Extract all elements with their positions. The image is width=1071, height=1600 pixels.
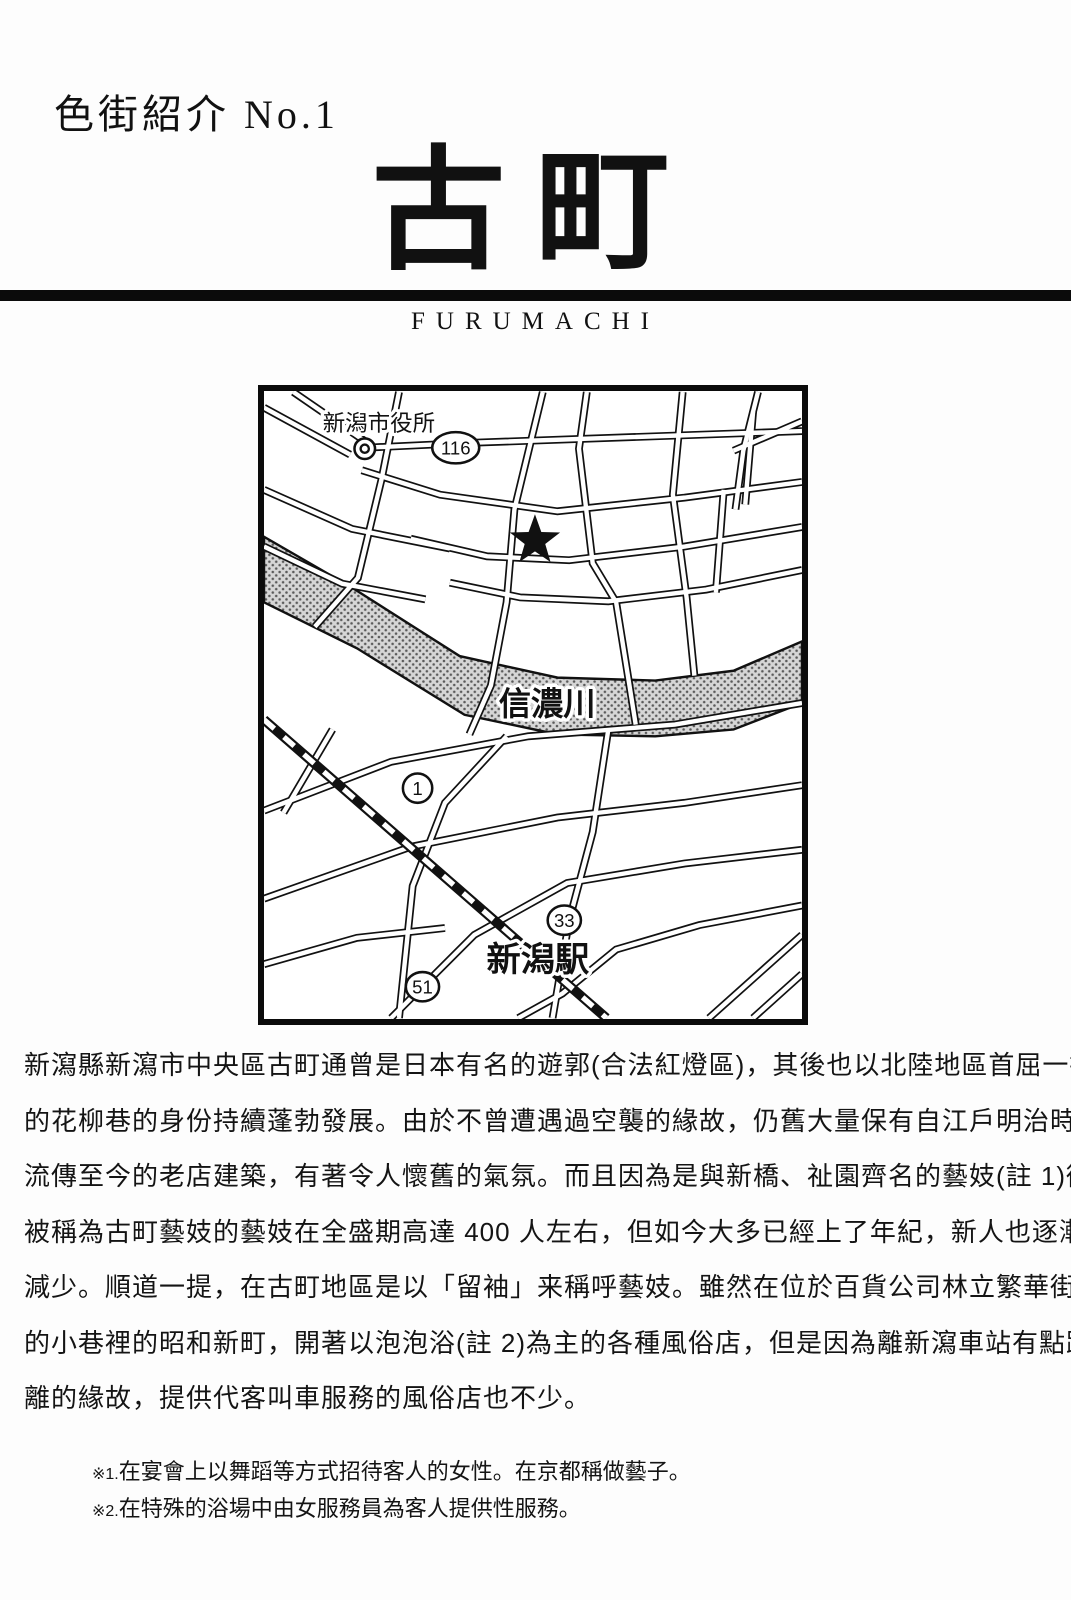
footnote-2-text: 在特殊的浴場中由女服務員為客人提供性服務。: [119, 1496, 581, 1521]
series-label: 色街紹介 No.1: [54, 82, 339, 140]
road-casing: [450, 570, 802, 601]
body-line: 的小巷裡的昭和新町，開著以泡泡浴(註 2)為主的各種風俗店，但是因為離新瀉車站有…: [24, 1316, 1054, 1372]
body-line: 的花柳巷的身份持續蓬勃發展。由於不曾遭遇過空襲的緣故，仍舊大量保有自江戶明治時代: [24, 1094, 1054, 1150]
body-paragraph: 新瀉縣新瀉市中央區古町通曾是日本有名的遊郭(合法紅燈區)，其後也以北陸地區首屈一…: [24, 1038, 1054, 1427]
page-title: 古町: [0, 142, 1071, 282]
city-hall-icon: [354, 438, 375, 459]
scanned-page: 色街紹介 No.1 古町 FURUMACHI: [0, 0, 1071, 1600]
footnote-1-text: 在宴會上以舞蹈等方式招待客人的女性。在京都稱做藝子。: [119, 1459, 691, 1484]
svg-text:51: 51: [412, 977, 433, 998]
road: [264, 785, 802, 898]
route-badge-51: 51: [406, 972, 439, 1001]
route-badge-1: 1: [403, 773, 432, 802]
road: [709, 935, 802, 1018]
svg-text:116: 116: [441, 438, 471, 459]
body-line: 新瀉縣新瀉市中央區古町通曾是日本有名的遊郭(合法紅燈區)，其後也以北陸地區首屈一…: [24, 1038, 1054, 1094]
road: [753, 974, 802, 1018]
svg-text:1: 1: [412, 778, 422, 799]
road-casing: [264, 785, 802, 898]
title-romaji: FURUMACHI: [0, 308, 1071, 336]
footnotes: ※1.在宴會上以舞蹈等方式招待客人的女性。在京都稱做藝子。 ※2.在特殊的浴場中…: [92, 1455, 691, 1529]
station-label: 新潟駅: [487, 941, 590, 979]
footnote-1: ※1.在宴會上以舞蹈等方式招待客人的女性。在京都稱做藝子。: [92, 1455, 691, 1492]
body-line: 減少。順道一提，在古町地區是以「留袖」来稱呼藝妓。雖然在位於百貨公司林立繁華街道: [24, 1260, 1054, 1316]
river-label: 信濃川: [499, 686, 596, 722]
city-hall-label: 新潟市役所: [323, 411, 435, 436]
route-badge-33: 33: [548, 906, 581, 935]
route-badge-116: 116: [432, 432, 479, 463]
svg-text:33: 33: [554, 910, 575, 931]
footnote-2: ※2.在特殊的浴場中由女服務員為客人提供性服務。: [92, 1492, 691, 1529]
body-line: 被稱為古町藝妓的藝妓在全盛期高達 400 人左右，但如今大多已經上了年紀，新人也…: [24, 1205, 1054, 1261]
area-map: 新潟市役所 信濃川 新潟駅 116 1 33 51: [258, 385, 808, 1025]
footnote-2-marker: ※2.: [92, 1503, 119, 1520]
body-line: 流傳至今的老店建築，有著令人懷舊的氣氛。而且因為是與新橋、祉園齊名的藝妓(註 1…: [24, 1149, 1054, 1205]
title-divider-rule: [0, 290, 1071, 301]
body-line: 離的緣故，提供代客叫車服務的風俗店也不少。: [24, 1371, 1054, 1427]
map-canvas: 新潟市役所 信濃川 新潟駅 116 1 33 51: [264, 391, 802, 1019]
footnote-1-marker: ※1.: [92, 1466, 119, 1483]
